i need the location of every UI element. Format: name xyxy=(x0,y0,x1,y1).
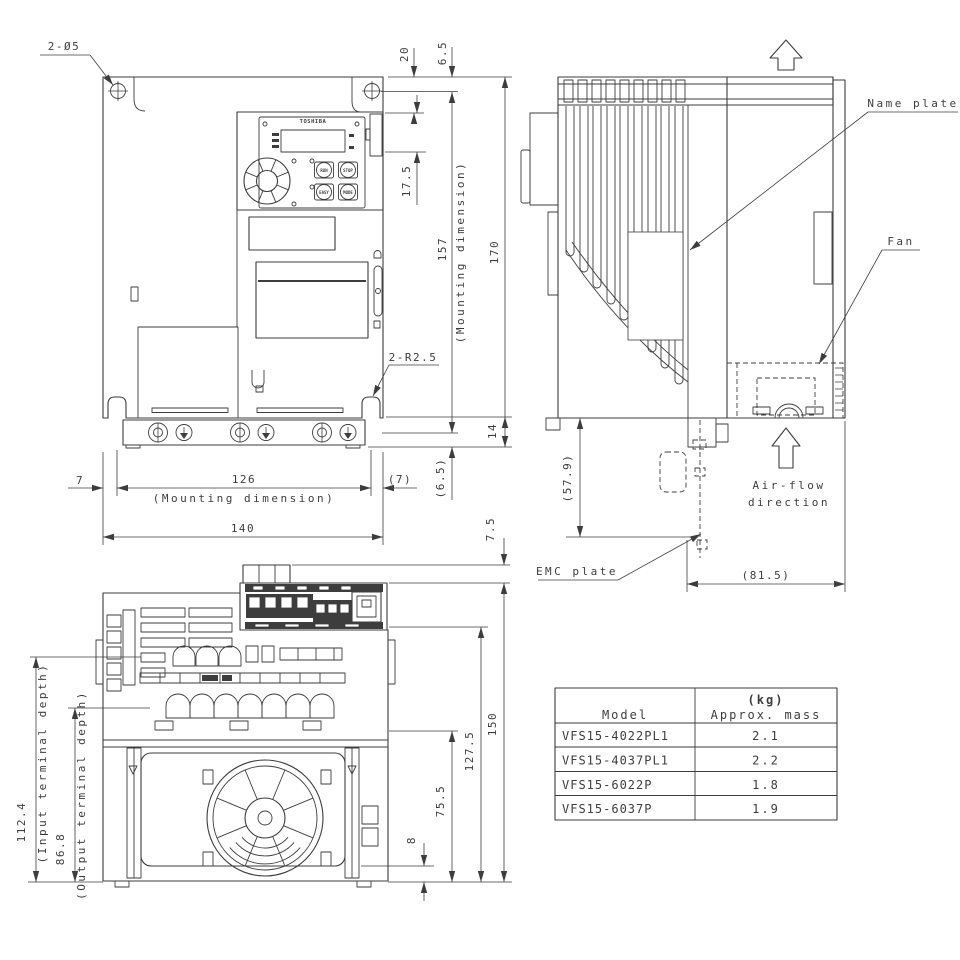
emc-plate-label: EMC plate xyxy=(536,565,618,578)
input-terminal-arches xyxy=(173,646,342,666)
mass-table: Model (kg) Approx. mass VFS15-4022PL1 2.… xyxy=(555,688,837,820)
output-terminal-arches xyxy=(155,694,334,730)
top-protrusion xyxy=(243,565,290,583)
dim-57-9: (57.9) xyxy=(561,454,574,503)
dim-126: 126 xyxy=(232,473,256,486)
mass-cell: 2.2 xyxy=(752,754,780,768)
front-covers xyxy=(152,217,382,413)
table-row: VFS15-4022PL1 2.1 xyxy=(562,729,780,743)
model-cell: VFS15-4022PL1 xyxy=(562,729,669,743)
airflow-label-2: direction xyxy=(748,496,830,509)
dim-112-4-note: (Input terminal depth) xyxy=(36,663,49,864)
bottom-bracket xyxy=(688,418,716,447)
mode-button-label: MODE xyxy=(343,190,353,195)
hook-detail xyxy=(252,370,264,388)
dim-75-5: 75.5 xyxy=(434,785,447,818)
dim-8: 8 xyxy=(405,836,418,844)
front-view: TOSHIBA RUN xyxy=(40,40,512,545)
side-latch xyxy=(370,114,382,156)
dim-7-right: (7) xyxy=(388,473,412,486)
bottom-view: 112.4 (Input terminal depth) 86.8 (Outpu… xyxy=(15,517,512,901)
airflow-label-1: Air-flow xyxy=(753,479,826,492)
dim-14: 14 xyxy=(486,423,499,439)
dim-127-5: 127.5 xyxy=(463,731,476,772)
dim-20: 20 xyxy=(398,46,411,62)
table-header-model: Model xyxy=(602,708,648,722)
dimensional-drawing: TOSHIBA RUN xyxy=(0,0,960,960)
model-cell: VFS15-6022P xyxy=(562,778,652,792)
mass-cell: 1.8 xyxy=(752,778,780,792)
dim-157-note: (Mounting dimension) xyxy=(454,161,467,343)
table-row: VFS15-6022P 1.8 xyxy=(562,778,780,792)
dim-6-5-top: 6.5 xyxy=(436,41,449,65)
name-plate-label: Name plate xyxy=(867,97,958,110)
alarm-led-icon xyxy=(355,122,359,126)
front-view-outline xyxy=(103,77,383,418)
dim-150: 150 xyxy=(486,712,499,736)
table-row: VFS15-6037P 1.9 xyxy=(562,802,780,816)
fan-label: Fan xyxy=(887,235,914,248)
terminal-cover xyxy=(256,262,368,338)
middle-slot-band xyxy=(140,673,345,683)
fan-guard xyxy=(207,760,323,876)
table-header-mass: Approx. mass xyxy=(711,708,822,722)
mass-cell: 1.9 xyxy=(752,802,780,816)
airflow-arrow-icon xyxy=(772,428,800,468)
fan-phantom xyxy=(727,363,843,418)
dim-86-8-note: (Output terminal depth) xyxy=(75,690,88,900)
table-header-kg: (kg) xyxy=(748,693,785,707)
keypad-display xyxy=(281,130,345,152)
fan-section xyxy=(115,748,378,887)
dim-7-5: 7.5 xyxy=(484,517,497,541)
callout-radius: 2-R2.5 xyxy=(389,351,438,364)
up-arrow-icon xyxy=(770,40,802,70)
keypad-brand: TOSHIBA xyxy=(300,119,327,125)
dim-17-5: 17.5 xyxy=(400,165,413,198)
terminal-screws xyxy=(149,423,357,442)
lock-icon xyxy=(374,251,381,258)
din-slot xyxy=(814,212,832,284)
dim-157: 157 xyxy=(436,237,449,261)
drawing-canvas: TOSHIBA RUN xyxy=(0,0,960,960)
easy-button-label: EASY xyxy=(319,190,329,195)
connector-block-detail xyxy=(245,584,383,629)
front-protrusion xyxy=(530,113,558,205)
left-clamp-stack xyxy=(107,610,135,691)
name-plate-area xyxy=(628,232,683,340)
stop-button: STOP xyxy=(339,162,358,178)
terminal-strip xyxy=(123,420,365,448)
run-button-label: RUN xyxy=(320,168,328,173)
easy-button: EASY xyxy=(315,184,334,200)
dim-81-5: (81.5) xyxy=(742,569,791,582)
table-row: VFS15-4037PL1 2.2 xyxy=(562,754,780,768)
dim-126-note: (Mounting dimension) xyxy=(153,492,335,505)
unlock-icon xyxy=(374,321,380,328)
side-view-body xyxy=(521,77,845,447)
front-view-dimensions: 2-Ø5 2-R2.5 20 6.5 17.5 157 (Mounting di… xyxy=(40,40,512,545)
dim-170: 170 xyxy=(488,240,501,264)
front-left-cover xyxy=(138,327,238,418)
bottom-view-dimensions: 112.4 (Input terminal depth) 86.8 (Outpu… xyxy=(15,517,512,901)
blank-window xyxy=(249,217,335,250)
mass-cell: 2.1 xyxy=(752,729,780,743)
dim-7: 7 xyxy=(76,474,84,487)
dim-6-5-bottom: (6.5) xyxy=(434,458,447,499)
keypad-dial xyxy=(244,158,314,206)
stop-button-label: STOP xyxy=(343,168,353,173)
side-view-dimensions: Name plate Fan EMC plate (57.9) (81.5) xyxy=(536,97,959,592)
dim-112-4: 112.4 xyxy=(15,802,28,843)
dim-140: 140 xyxy=(231,522,255,535)
callout-holes: 2-Ø5 xyxy=(48,40,81,53)
side-view: Air-flow direction Name plate Fan EMC pl… xyxy=(521,40,959,592)
model-cell: VFS15-6037P xyxy=(562,802,652,816)
keypad-panel: TOSHIBA RUN xyxy=(237,112,383,210)
mode-button: MODE xyxy=(339,184,358,200)
model-cell: VFS15-4037PL1 xyxy=(562,754,669,768)
run-button: RUN xyxy=(315,162,334,178)
vent-slot-rows xyxy=(141,608,232,677)
power-led-icon xyxy=(263,122,267,126)
dim-86-8: 86.8 xyxy=(54,833,67,866)
